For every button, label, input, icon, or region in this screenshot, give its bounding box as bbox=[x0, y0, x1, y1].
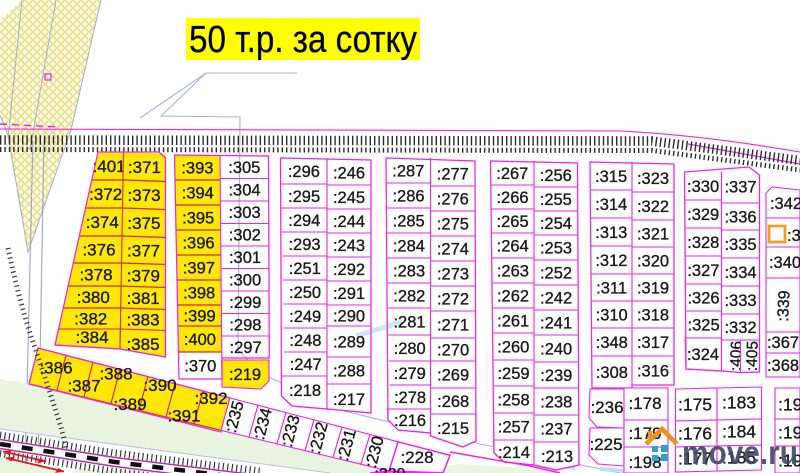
svg-text::322: :322 bbox=[637, 198, 669, 216]
svg-text::244: :244 bbox=[333, 213, 365, 231]
svg-text::272: :272 bbox=[437, 290, 469, 308]
svg-text::264: :264 bbox=[497, 237, 529, 255]
svg-text::279: :279 bbox=[394, 365, 426, 383]
svg-text::311: :311 bbox=[596, 279, 627, 297]
svg-text::332: :332 bbox=[724, 319, 756, 337]
svg-text::299: :299 bbox=[229, 294, 261, 312]
svg-text::285: :285 bbox=[393, 212, 425, 230]
svg-text::392: :392 bbox=[194, 389, 227, 408]
svg-text::281: :281 bbox=[393, 313, 425, 331]
svg-text::294: :294 bbox=[288, 212, 320, 230]
svg-text::277: :277 bbox=[437, 165, 469, 183]
svg-text::339: :339 bbox=[775, 290, 794, 322]
svg-text::296: :296 bbox=[288, 163, 320, 181]
svg-text::335: :335 bbox=[724, 236, 756, 254]
svg-text::383: :383 bbox=[126, 310, 159, 329]
svg-text::273: :273 bbox=[437, 265, 469, 283]
svg-text::384: :384 bbox=[75, 328, 108, 347]
svg-text:move.ru: move.ru bbox=[682, 434, 798, 471]
svg-text::374: :374 bbox=[86, 213, 119, 232]
svg-text::287: :287 bbox=[392, 162, 424, 180]
svg-text::19: :19 bbox=[778, 394, 800, 414]
svg-text::377: :377 bbox=[127, 241, 160, 260]
svg-text::334: :334 bbox=[724, 264, 756, 282]
svg-text::373: :373 bbox=[128, 186, 161, 205]
svg-text::274: :274 bbox=[437, 240, 469, 258]
svg-text::381: :381 bbox=[127, 289, 160, 308]
svg-text::252: :252 bbox=[540, 264, 572, 282]
svg-text::398: :398 bbox=[183, 284, 215, 302]
svg-text::269: :269 bbox=[437, 366, 469, 384]
svg-text::391: :391 bbox=[167, 407, 200, 426]
svg-text::310: :310 bbox=[596, 306, 628, 324]
svg-text::295: :295 bbox=[288, 188, 320, 206]
svg-text::399: :399 bbox=[184, 307, 216, 325]
svg-text::237: :237 bbox=[540, 420, 572, 438]
svg-text::290: :290 bbox=[333, 307, 365, 325]
svg-text::340: :340 bbox=[769, 254, 800, 272]
svg-text::259: :259 bbox=[497, 365, 529, 383]
svg-text::329: :329 bbox=[687, 206, 719, 224]
svg-text::312: :312 bbox=[595, 252, 627, 270]
svg-text::213: :213 bbox=[541, 448, 573, 466]
svg-text::34: :34 bbox=[787, 227, 800, 245]
svg-text::248: :248 bbox=[289, 332, 321, 350]
svg-text::348: :348 bbox=[596, 334, 628, 352]
svg-text::308: :308 bbox=[596, 364, 628, 382]
svg-text::380: :380 bbox=[77, 288, 110, 307]
svg-text::336: :336 bbox=[724, 208, 756, 226]
svg-text::282: :282 bbox=[393, 287, 425, 305]
svg-text::265: :265 bbox=[497, 213, 529, 231]
svg-text::397: :397 bbox=[183, 259, 215, 277]
svg-text::183: :183 bbox=[722, 392, 756, 412]
svg-text::291: :291 bbox=[333, 285, 365, 303]
svg-text::297: :297 bbox=[230, 339, 262, 357]
svg-text::215: :215 bbox=[437, 420, 469, 438]
svg-text::305: :305 bbox=[228, 159, 260, 177]
svg-text::256: :256 bbox=[540, 167, 572, 185]
svg-text::292: :292 bbox=[333, 261, 365, 279]
svg-text::393: :393 bbox=[181, 159, 213, 177]
svg-text::238: :238 bbox=[540, 393, 572, 411]
svg-text::394: :394 bbox=[182, 184, 214, 202]
svg-text::216: :216 bbox=[394, 412, 426, 430]
svg-text::270: :270 bbox=[437, 341, 469, 359]
svg-text::246: :246 bbox=[333, 164, 365, 182]
svg-text::302: :302 bbox=[229, 227, 261, 245]
svg-text::379: :379 bbox=[127, 266, 160, 285]
svg-text::218: :218 bbox=[289, 382, 321, 400]
svg-text::389: :389 bbox=[113, 395, 146, 414]
svg-text::243: :243 bbox=[333, 237, 365, 255]
svg-text::342: :342 bbox=[770, 195, 800, 213]
svg-text::266: :266 bbox=[496, 189, 528, 207]
svg-text::316: :316 bbox=[637, 362, 669, 380]
svg-text::268: :268 bbox=[437, 393, 469, 411]
svg-text::324: :324 bbox=[687, 346, 719, 364]
svg-text::325: :325 bbox=[688, 316, 720, 334]
svg-text::249: :249 bbox=[289, 308, 321, 326]
svg-text::321: :321 bbox=[637, 225, 669, 243]
svg-text::367: :367 bbox=[767, 334, 799, 352]
svg-text::275: :275 bbox=[437, 215, 469, 233]
svg-text::378: :378 bbox=[79, 266, 112, 285]
svg-text::283: :283 bbox=[393, 262, 425, 280]
svg-text::225: :225 bbox=[589, 435, 622, 454]
svg-text::263: :263 bbox=[497, 262, 529, 280]
svg-text::396: :396 bbox=[182, 234, 214, 252]
svg-text::258: :258 bbox=[498, 391, 530, 409]
svg-text::236: :236 bbox=[590, 398, 623, 417]
svg-text::286: :286 bbox=[392, 187, 424, 205]
svg-text::395: :395 bbox=[182, 209, 214, 227]
svg-text::262: :262 bbox=[497, 287, 529, 305]
svg-text::284: :284 bbox=[393, 237, 425, 255]
svg-text::387: :387 bbox=[67, 377, 100, 396]
svg-text::372: :372 bbox=[89, 185, 122, 204]
svg-text::319: :319 bbox=[637, 279, 669, 297]
svg-text::320: :320 bbox=[637, 252, 669, 270]
svg-text::315: :315 bbox=[595, 168, 627, 186]
svg-text::303: :303 bbox=[229, 204, 261, 222]
svg-text::328: :328 bbox=[687, 234, 719, 252]
svg-text::368: :368 bbox=[767, 357, 799, 375]
svg-text::304: :304 bbox=[228, 182, 260, 200]
svg-text::371: :371 bbox=[128, 158, 161, 177]
svg-text::337: :337 bbox=[724, 178, 756, 196]
svg-text::255: :255 bbox=[540, 191, 572, 209]
svg-text::271: :271 bbox=[437, 316, 469, 334]
svg-text:50 т.р. за сотку: 50 т.р. за сотку bbox=[189, 19, 417, 61]
svg-text::293: :293 bbox=[288, 236, 320, 254]
svg-text::254: :254 bbox=[540, 215, 572, 233]
svg-text::317: :317 bbox=[637, 334, 669, 352]
svg-text::175: :175 bbox=[678, 394, 712, 414]
svg-text::401: :401 bbox=[93, 157, 126, 176]
svg-text::240: :240 bbox=[540, 340, 572, 358]
svg-text::280: :280 bbox=[394, 340, 426, 358]
svg-text::388: :388 bbox=[99, 365, 132, 384]
svg-text::301: :301 bbox=[229, 249, 261, 267]
svg-text::375: :375 bbox=[127, 214, 160, 233]
svg-text::239: :239 bbox=[540, 367, 572, 385]
svg-text::251: :251 bbox=[289, 260, 321, 278]
svg-text::400: :400 bbox=[184, 331, 216, 349]
svg-text::326: :326 bbox=[687, 289, 719, 307]
svg-text::247: :247 bbox=[290, 356, 322, 374]
svg-text::214: :214 bbox=[498, 444, 530, 462]
svg-text::217: :217 bbox=[333, 391, 365, 409]
svg-text::245: :245 bbox=[333, 189, 365, 207]
svg-text::178: :178 bbox=[628, 394, 661, 413]
svg-text::242: :242 bbox=[540, 289, 572, 307]
svg-text::228: :228 bbox=[400, 448, 433, 467]
svg-text::261: :261 bbox=[497, 312, 529, 330]
svg-text::370: :370 bbox=[184, 357, 216, 375]
svg-text::267: :267 bbox=[496, 165, 528, 183]
svg-text::289: :289 bbox=[333, 333, 365, 351]
svg-text::323: :323 bbox=[637, 170, 669, 188]
svg-text::314: :314 bbox=[595, 196, 627, 214]
svg-text::376: :376 bbox=[82, 241, 115, 260]
svg-text::241: :241 bbox=[540, 314, 572, 332]
svg-text::276: :276 bbox=[437, 190, 469, 208]
svg-text::390: :390 bbox=[143, 376, 176, 395]
svg-text::330: :330 bbox=[687, 178, 719, 196]
svg-text::219: :219 bbox=[229, 366, 261, 384]
svg-text::253: :253 bbox=[540, 239, 572, 257]
svg-text::327: :327 bbox=[687, 262, 719, 280]
svg-text::278: :278 bbox=[394, 389, 426, 407]
svg-text::382: :382 bbox=[74, 310, 107, 329]
svg-text::257: :257 bbox=[498, 418, 530, 436]
svg-text::333: :333 bbox=[724, 292, 756, 310]
svg-text::298: :298 bbox=[229, 317, 261, 335]
svg-text::313: :313 bbox=[595, 224, 627, 242]
svg-text::250: :250 bbox=[289, 284, 321, 302]
svg-text::300: :300 bbox=[229, 272, 261, 290]
svg-text::318: :318 bbox=[637, 306, 669, 324]
svg-text::260: :260 bbox=[497, 338, 529, 356]
svg-text::288: :288 bbox=[333, 362, 365, 380]
